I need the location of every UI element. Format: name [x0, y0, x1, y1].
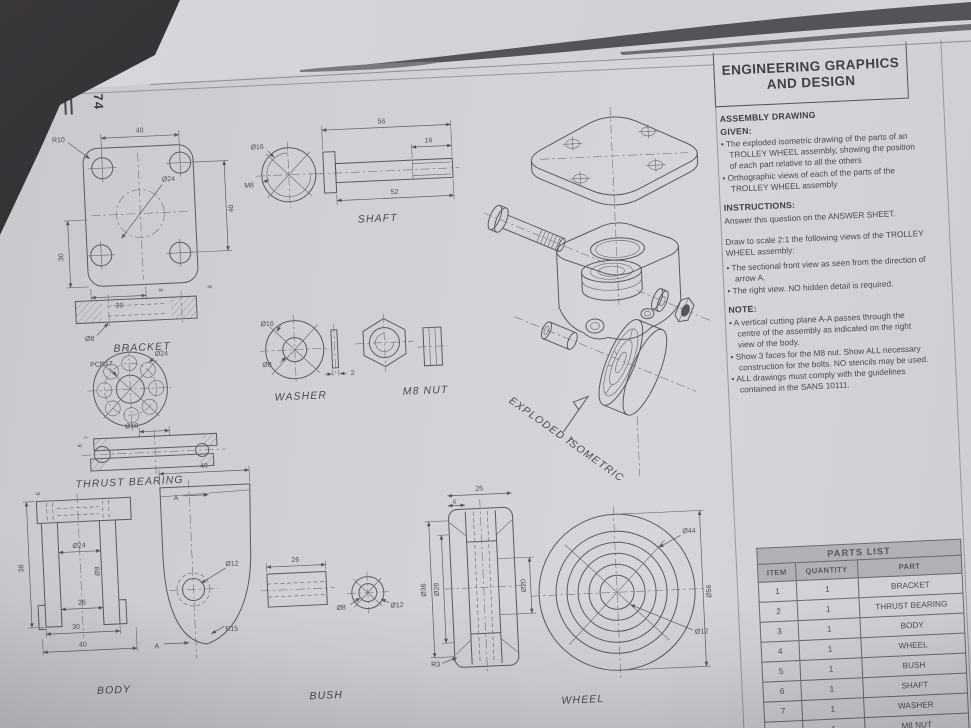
- cell-quantity: 1: [801, 678, 864, 701]
- cell-item: 3: [760, 621, 799, 643]
- cell-item: 4: [761, 641, 800, 663]
- shaft-side-view: 56 16 52 SHAFT: [313, 115, 462, 227]
- dim-bracket-bottom: 30: [116, 302, 124, 309]
- dim-shaft-thread-len: 16: [424, 137, 432, 144]
- dim-washer-thk: 2: [351, 370, 355, 377]
- thrust-bearing-section-view: Ø10 8 7 THRUST BEARING: [73, 419, 228, 491]
- dim-body-width: 40: [79, 641, 87, 648]
- dim-wheel-d36: Ø36: [420, 583, 428, 597]
- dim-shaft-shank: 52: [391, 189, 399, 196]
- photo-scene: 74 ENGINEERING GRAPHICS AND DESIGN ASSEM…: [0, 0, 971, 728]
- wheel-side-view: 26 6 Ø36 Ø28 Ø20 R3: [416, 483, 538, 676]
- dim-body-side-radius: R15: [225, 626, 238, 634]
- dim-shaft-thread: M8: [244, 182, 254, 189]
- bracket-top-view: Ø24 R10 40 40 30 30: [52, 123, 240, 312]
- cell-item: 6: [763, 681, 802, 703]
- body-label: BODY: [97, 683, 132, 697]
- shaft-end-view: Ø16 M8: [242, 140, 323, 209]
- dim-body-flange: 6: [36, 491, 42, 495]
- shaft-label: SHAFT: [358, 212, 399, 226]
- cell-quantity: 1: [796, 578, 859, 601]
- col-item: ITEM: [757, 563, 796, 583]
- dim-wheel-r3: R3: [431, 661, 440, 668]
- body-front-view: Ø24 Ø8 26 30 40 38 6 BODY: [15, 487, 139, 700]
- brief-column: ASSEMBLY DRAWING GIVEN: The exploded iso…: [719, 105, 932, 404]
- dim-wheel-tread: 6: [453, 499, 457, 505]
- dim-bracket-hole: Ø8: [85, 336, 95, 343]
- dim-body-inner: 26: [78, 599, 86, 606]
- cell-quantity: 1: [799, 638, 862, 661]
- parts-list-table: PARTS LIST ITEM QUANTITY PART 1 1 BRACKE…: [756, 539, 970, 728]
- dim-bracket-left: 30: [58, 253, 65, 261]
- dim-bush-bore: Ø8: [336, 605, 346, 612]
- instructions-list: The sectional front view as seen from th…: [726, 254, 927, 297]
- dim-bracket-radius: R10: [52, 137, 65, 145]
- dim-washer-outer: Ø16: [260, 321, 274, 329]
- dim-shaft-dia: Ø16: [250, 144, 264, 152]
- dim-bracket-boss: Ø24: [162, 176, 176, 184]
- dim-bush-outer: Ø12: [390, 602, 404, 610]
- note-list: A vertical cutting plane A-A passes thro…: [729, 309, 932, 397]
- washer-front-view: Ø16 Ø8 WASHER: [258, 313, 332, 404]
- dim-body-hole: Ø8: [94, 566, 101, 576]
- exploded-label: EXPLODED ISOMETRIC: [507, 395, 627, 485]
- nut-side-view: M8 NUT: [400, 327, 450, 398]
- dim-bearing-pcd: PCD17: [90, 361, 113, 369]
- wheel-front-view: Ø44 Ø56 Ø12 WHEEL: [527, 502, 718, 708]
- dim-bearing-h1: 8: [78, 443, 84, 447]
- bush-side-view: 26 BUSH: [259, 555, 343, 704]
- dim-body-bore: Ø24: [72, 542, 86, 550]
- cell-quantity: 1: [801, 698, 864, 721]
- given-list: The exploded isometric drawing of the pa…: [721, 130, 923, 195]
- section-label-top: A: [174, 495, 179, 502]
- body-right-view: A A 40 Ø12 R15: [146, 461, 257, 660]
- dim-bracket-width: 40: [136, 127, 144, 134]
- title-line-2: AND DESIGN: [766, 72, 855, 91]
- dim-washer-bore: Ø8: [262, 362, 272, 369]
- dim-body-side-width: 40: [200, 463, 208, 470]
- cell-item: 1: [758, 581, 797, 603]
- cell-quantity: 1: [798, 618, 861, 641]
- drawings-canvas: Ø24 R10 40 40 30 30: [0, 60, 743, 728]
- thrust-bearing-label: THRUST BEARING: [75, 474, 184, 491]
- dim-body-mid: 30: [72, 624, 80, 631]
- dim-wheel-d20: Ø20: [520, 579, 528, 593]
- bush-end-view: Ø8 Ø12: [335, 570, 404, 615]
- cell-item: 7: [764, 701, 803, 723]
- dim-wheel-d56: Ø56: [706, 584, 714, 598]
- dim-bearing-bore: Ø10: [125, 423, 139, 431]
- thrust-bearing-front-view: PCD17 Ø24: [85, 344, 175, 434]
- dim-shaft-total: 56: [377, 118, 385, 125]
- dim-body-side-hole: Ø12: [225, 560, 239, 568]
- dim-bearing-outer: Ø24: [155, 350, 169, 358]
- cell-item: 5: [762, 661, 801, 683]
- section-label-bottom: A: [154, 643, 159, 650]
- dim-bracket-height: 40: [228, 204, 235, 212]
- dim-bearing-h2: 7: [84, 435, 90, 439]
- dim-body-height: 38: [18, 564, 25, 572]
- bush-label: BUSH: [309, 689, 343, 703]
- washer-side-view: 2: [323, 323, 355, 378]
- nut-front-view: [354, 312, 415, 373]
- nut-label: M8 NUT: [402, 384, 449, 398]
- dim-bracket-boss-thk: 8: [208, 284, 214, 288]
- dim-wheel-d28: Ø28: [433, 583, 441, 597]
- cell-item: 2: [759, 601, 798, 623]
- dim-wheel-width: 26: [475, 485, 483, 492]
- cell-item: 8: [765, 721, 804, 728]
- dim-wheel-d12: Ø12: [695, 628, 709, 636]
- drawing-sheet: 74 ENGINEERING GRAPHICS AND DESIGN ASSEM…: [0, 5, 971, 728]
- dim-wheel-d44: Ø44: [682, 528, 696, 536]
- wheel-label: WHEEL: [561, 693, 604, 707]
- exploded-isometric-view: A EXPLODED ISOMETRIC: [474, 103, 718, 490]
- washer-label: WASHER: [274, 389, 327, 403]
- cell-quantity: 1: [802, 718, 865, 728]
- dim-bracket-plate-thk: 8: [159, 287, 165, 291]
- dim-bush-length: 26: [291, 557, 299, 564]
